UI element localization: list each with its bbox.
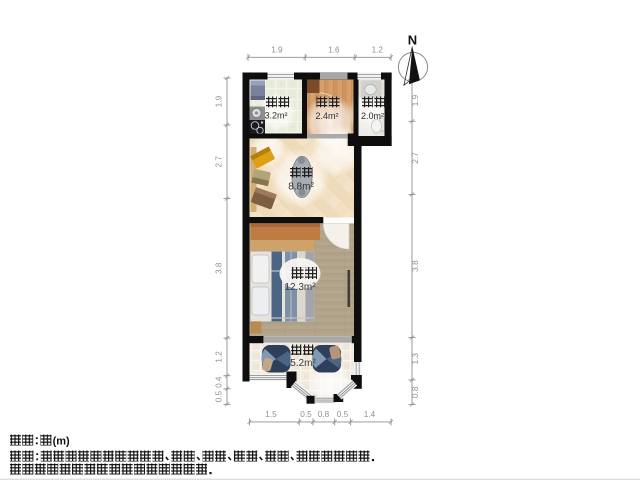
svg-text:1.4: 1.4 <box>364 410 376 419</box>
svg-text:8.8m²: 8.8m² <box>288 182 314 193</box>
svg-text:12.3m²: 12.3m² <box>284 282 316 293</box>
svg-text:5.2m²: 5.2m² <box>290 358 316 369</box>
svg-text:0.8: 0.8 <box>318 410 330 419</box>
svg-text:3.8: 3.8 <box>411 260 420 272</box>
svg-text:0.8: 0.8 <box>411 386 420 398</box>
svg-text:N: N <box>408 33 417 48</box>
svg-text:2.7: 2.7 <box>215 156 224 168</box>
svg-text:2.0m²: 2.0m² <box>361 111 384 121</box>
svg-text:1.9: 1.9 <box>411 94 420 106</box>
svg-text:2.7: 2.7 <box>411 152 420 164</box>
svg-text:1.6: 1.6 <box>328 46 340 55</box>
svg-text:1.9: 1.9 <box>271 46 283 55</box>
svg-text:0.5: 0.5 <box>337 410 349 419</box>
svg-text:(m): (m) <box>53 436 70 448</box>
svg-text:0.5: 0.5 <box>300 410 312 419</box>
svg-text:3.8: 3.8 <box>215 262 224 274</box>
svg-text:1.3: 1.3 <box>411 353 420 365</box>
svg-text:1.2: 1.2 <box>215 351 224 363</box>
svg-text:3.2m²: 3.2m² <box>264 111 287 121</box>
svg-text:1.9: 1.9 <box>215 95 224 107</box>
svg-text:1.5: 1.5 <box>265 410 277 419</box>
svg-text:2.4m²: 2.4m² <box>315 111 338 121</box>
svg-text:0.5: 0.5 <box>215 390 224 402</box>
svg-text:1.2: 1.2 <box>372 46 384 55</box>
svg-text:0.4: 0.4 <box>215 376 224 388</box>
